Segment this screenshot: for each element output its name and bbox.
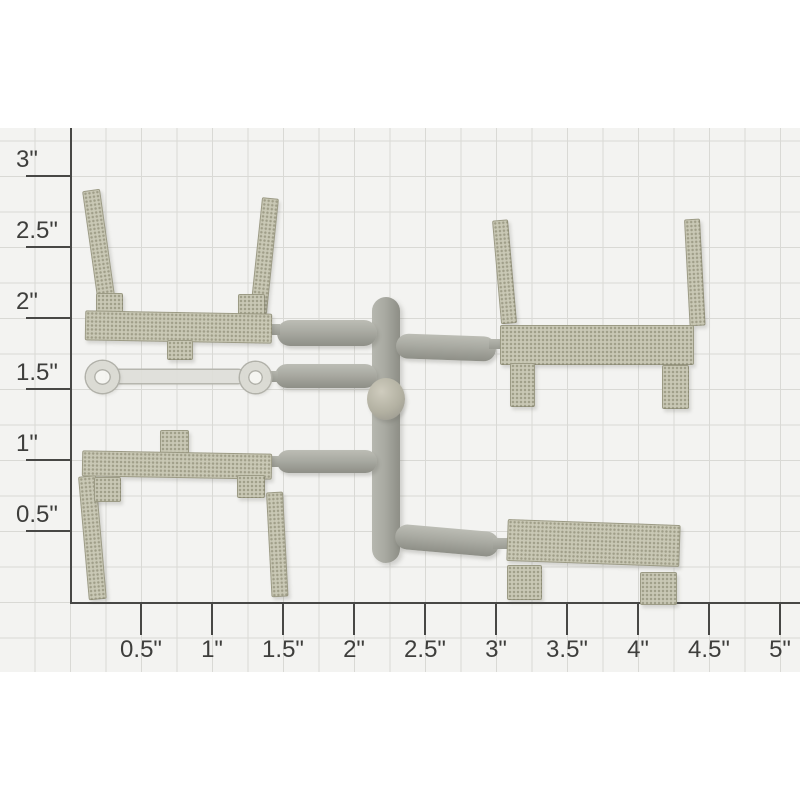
ul-main-bar xyxy=(85,310,272,343)
y-tick-label: 1" xyxy=(16,431,74,457)
y-tick-label: 3" xyxy=(16,147,74,173)
link-left-eyelet xyxy=(86,361,119,393)
y-tick-label: 0.5" xyxy=(16,502,74,528)
ur-left-strip xyxy=(492,219,517,324)
x-tick-mark xyxy=(495,602,497,635)
x-tick-label: 1.5" xyxy=(248,636,318,664)
y-tick-mark xyxy=(26,317,71,319)
y-tick-mark xyxy=(26,246,71,248)
y-tick-mark xyxy=(26,388,71,390)
ul-bottom-tab xyxy=(167,340,193,360)
ur-main-bar xyxy=(500,325,694,365)
x-tick-label: 5" xyxy=(745,636,800,664)
lr-main-bar xyxy=(506,519,680,567)
x-tick-mark xyxy=(282,602,284,635)
runner-arm-upper-right xyxy=(396,333,497,361)
ur-left-tab xyxy=(510,363,535,407)
x-tick-mark xyxy=(211,602,213,635)
ll-left-block xyxy=(94,477,121,502)
x-tick-mark xyxy=(140,602,142,635)
ur-right-strip xyxy=(684,219,706,327)
y-tick-mark xyxy=(26,175,71,177)
y-tick-mark xyxy=(26,459,71,461)
x-tick-mark xyxy=(779,602,781,635)
x-tick-mark xyxy=(708,602,710,635)
x-tick-label: 3.5" xyxy=(532,636,602,664)
runner-arm-lower-right xyxy=(394,524,500,558)
lr-left-tab xyxy=(507,565,542,600)
product-photo: 0.5"1"1.5"2"2.5"3"3.5"4"4.5"5" 0.5"1"1.5… xyxy=(0,128,800,672)
x-tick-label: 1" xyxy=(177,636,247,664)
x-tick-label: 0.5" xyxy=(106,636,176,664)
lr-right-tab xyxy=(640,572,677,605)
ll-right-block xyxy=(237,475,265,498)
ul-left-strip xyxy=(82,189,115,300)
link-right-eyelet xyxy=(240,362,271,393)
x-tick-mark xyxy=(637,602,639,635)
x-tick-mark xyxy=(353,602,355,635)
runner-arm-lower-left xyxy=(277,450,377,473)
y-tick-mark xyxy=(26,530,71,532)
y-tick-label: 2" xyxy=(16,289,74,315)
x-tick-label: 2" xyxy=(319,636,389,664)
x-tick-mark xyxy=(424,602,426,635)
runner-arm-upper-left xyxy=(277,320,377,346)
y-tick-label: 2.5" xyxy=(16,218,74,244)
link-rod xyxy=(112,370,244,383)
ll-top-tab xyxy=(160,430,189,454)
runner-center-ball xyxy=(367,378,405,420)
horizontal-ruler-axis xyxy=(70,602,800,604)
y-tick-label: 1.5" xyxy=(16,360,74,386)
ur-right-tab xyxy=(662,365,689,409)
x-tick-label: 3" xyxy=(461,636,531,664)
x-tick-label: 4" xyxy=(603,636,673,664)
ll-right-strip xyxy=(266,492,288,598)
runner-arm-mid-left xyxy=(275,364,377,388)
x-tick-label: 2.5" xyxy=(390,636,460,664)
screenshot-root: 0.5"1"1.5"2"2.5"3"3.5"4"4.5"5" 0.5"1"1.5… xyxy=(0,0,800,800)
x-tick-mark xyxy=(566,602,568,635)
x-tick-label: 4.5" xyxy=(674,636,744,664)
